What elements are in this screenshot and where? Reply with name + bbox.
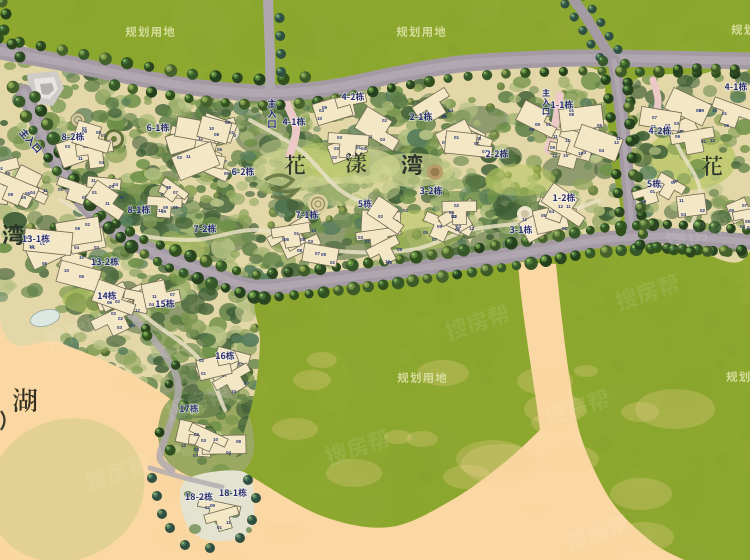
svg-text:08: 08 — [236, 439, 242, 444]
svg-text:03: 03 — [65, 144, 71, 149]
svg-text:07: 07 — [673, 179, 679, 184]
svg-text:04: 04 — [448, 108, 454, 113]
svg-text:08: 08 — [297, 248, 303, 253]
svg-text:01: 01 — [562, 226, 568, 231]
svg-text:09: 09 — [535, 122, 541, 127]
svg-text:10: 10 — [64, 268, 70, 273]
svg-text:05: 05 — [541, 213, 547, 218]
svg-text:01: 01 — [294, 231, 300, 236]
svg-text:09: 09 — [210, 503, 216, 508]
svg-text:02: 02 — [199, 358, 205, 363]
svg-text:06: 06 — [42, 261, 48, 266]
svg-text:03: 03 — [201, 438, 207, 443]
svg-text:11: 11 — [553, 134, 558, 139]
svg-text:01: 01 — [101, 133, 107, 138]
svg-text:12: 12 — [385, 259, 391, 264]
svg-text:10: 10 — [79, 255, 85, 260]
svg-text:03: 03 — [337, 135, 343, 140]
svg-text:08: 08 — [696, 108, 702, 113]
svg-text:04: 04 — [30, 190, 36, 195]
svg-text:07: 07 — [432, 237, 438, 242]
svg-text:07: 07 — [193, 453, 199, 458]
svg-text:06: 06 — [217, 147, 223, 152]
svg-text:12: 12 — [710, 138, 716, 143]
svg-text:05: 05 — [423, 230, 429, 235]
svg-text:07: 07 — [742, 203, 748, 208]
svg-text:04: 04 — [226, 450, 232, 455]
svg-text:11: 11 — [105, 201, 110, 206]
svg-text:01: 01 — [701, 139, 707, 144]
svg-text:09: 09 — [224, 171, 230, 176]
svg-text:01: 01 — [201, 371, 207, 376]
svg-text:12: 12 — [135, 308, 141, 313]
svg-text:11: 11 — [78, 156, 83, 161]
svg-text:03: 03 — [194, 447, 200, 452]
svg-text:07: 07 — [474, 141, 480, 146]
svg-text:02: 02 — [111, 311, 117, 316]
svg-text:09: 09 — [397, 247, 403, 252]
svg-text:06: 06 — [107, 300, 113, 305]
svg-text:06: 06 — [79, 274, 85, 279]
svg-text:03: 03 — [358, 235, 364, 240]
svg-text:04: 04 — [599, 148, 605, 153]
svg-text:02: 02 — [378, 214, 384, 219]
svg-text:02: 02 — [382, 118, 388, 123]
svg-text:03: 03 — [94, 245, 100, 250]
svg-text:10: 10 — [119, 195, 125, 200]
svg-text:04: 04 — [681, 212, 687, 217]
svg-text:08: 08 — [214, 132, 220, 137]
svg-text:12: 12 — [469, 226, 475, 231]
svg-text:11: 11 — [679, 198, 684, 203]
svg-text:07: 07 — [244, 381, 250, 386]
svg-text:06: 06 — [455, 227, 461, 232]
svg-text:02: 02 — [700, 208, 706, 213]
svg-text:08: 08 — [300, 237, 306, 242]
svg-text:08: 08 — [442, 114, 448, 119]
svg-text:05: 05 — [597, 123, 603, 128]
svg-text:10: 10 — [209, 126, 215, 131]
svg-text:01: 01 — [722, 111, 728, 116]
svg-text:09: 09 — [321, 252, 327, 257]
svg-text:09: 09 — [75, 226, 81, 231]
svg-text:05: 05 — [96, 130, 102, 135]
svg-text:01: 01 — [356, 145, 362, 150]
svg-text:02: 02 — [454, 203, 460, 208]
svg-text:11: 11 — [226, 520, 231, 525]
svg-text:01: 01 — [403, 208, 409, 213]
svg-text:08: 08 — [166, 185, 172, 190]
svg-text:02: 02 — [205, 505, 211, 510]
svg-text:09: 09 — [675, 134, 681, 139]
svg-text:02: 02 — [85, 222, 91, 227]
svg-text:09: 09 — [163, 205, 169, 210]
svg-text:02: 02 — [194, 432, 200, 437]
svg-text:11: 11 — [566, 204, 571, 209]
svg-text:10: 10 — [29, 244, 35, 249]
svg-text:01: 01 — [217, 525, 223, 530]
svg-text:12: 12 — [311, 228, 317, 233]
svg-text:07: 07 — [170, 292, 176, 297]
svg-text:03: 03 — [674, 121, 680, 126]
svg-text:11: 11 — [565, 138, 570, 143]
svg-text:04: 04 — [130, 323, 136, 328]
svg-text:01: 01 — [650, 189, 656, 194]
svg-text:05: 05 — [225, 120, 231, 125]
svg-text:06: 06 — [724, 123, 730, 128]
svg-text:10: 10 — [231, 389, 237, 394]
svg-text:09: 09 — [641, 199, 647, 204]
svg-text:07: 07 — [315, 251, 321, 256]
svg-text:04: 04 — [149, 302, 155, 307]
svg-text:01: 01 — [58, 187, 64, 192]
svg-text:03: 03 — [117, 325, 123, 330]
svg-text:08: 08 — [8, 192, 14, 197]
svg-text:08: 08 — [529, 127, 535, 132]
svg-text:10: 10 — [213, 437, 219, 442]
svg-text:05: 05 — [745, 219, 750, 224]
svg-text:02: 02 — [118, 316, 124, 321]
svg-text:01: 01 — [0, 166, 4, 171]
svg-text:09: 09 — [550, 145, 556, 150]
svg-text:06: 06 — [284, 237, 290, 242]
svg-text:11: 11 — [186, 154, 191, 159]
svg-text:03: 03 — [334, 146, 340, 151]
svg-text:12: 12 — [614, 140, 620, 145]
svg-text:01: 01 — [92, 190, 98, 195]
svg-text:10: 10 — [317, 116, 323, 121]
svg-text:02: 02 — [330, 260, 336, 265]
svg-text:04: 04 — [361, 146, 367, 151]
svg-text:12: 12 — [181, 443, 187, 448]
svg-text:09: 09 — [322, 105, 328, 110]
svg-text:10: 10 — [452, 214, 458, 219]
svg-text:12: 12 — [558, 204, 564, 209]
svg-text:10: 10 — [712, 108, 718, 113]
svg-text:01: 01 — [546, 122, 552, 127]
svg-text:07: 07 — [173, 190, 179, 195]
svg-text:02: 02 — [740, 224, 746, 229]
svg-text:12: 12 — [522, 217, 528, 222]
svg-text:04: 04 — [99, 160, 105, 165]
svg-text:06: 06 — [25, 191, 31, 196]
svg-text:12: 12 — [552, 153, 558, 158]
svg-text:04: 04 — [74, 245, 80, 250]
svg-text:03: 03 — [380, 137, 386, 142]
svg-text:07: 07 — [365, 239, 371, 244]
svg-text:07: 07 — [652, 115, 658, 120]
svg-text:02: 02 — [332, 155, 338, 160]
svg-text:01: 01 — [454, 135, 460, 140]
svg-text:05: 05 — [173, 205, 179, 210]
svg-text:11: 11 — [152, 294, 157, 299]
svg-text:02: 02 — [177, 155, 183, 160]
svg-text:10: 10 — [578, 151, 584, 156]
